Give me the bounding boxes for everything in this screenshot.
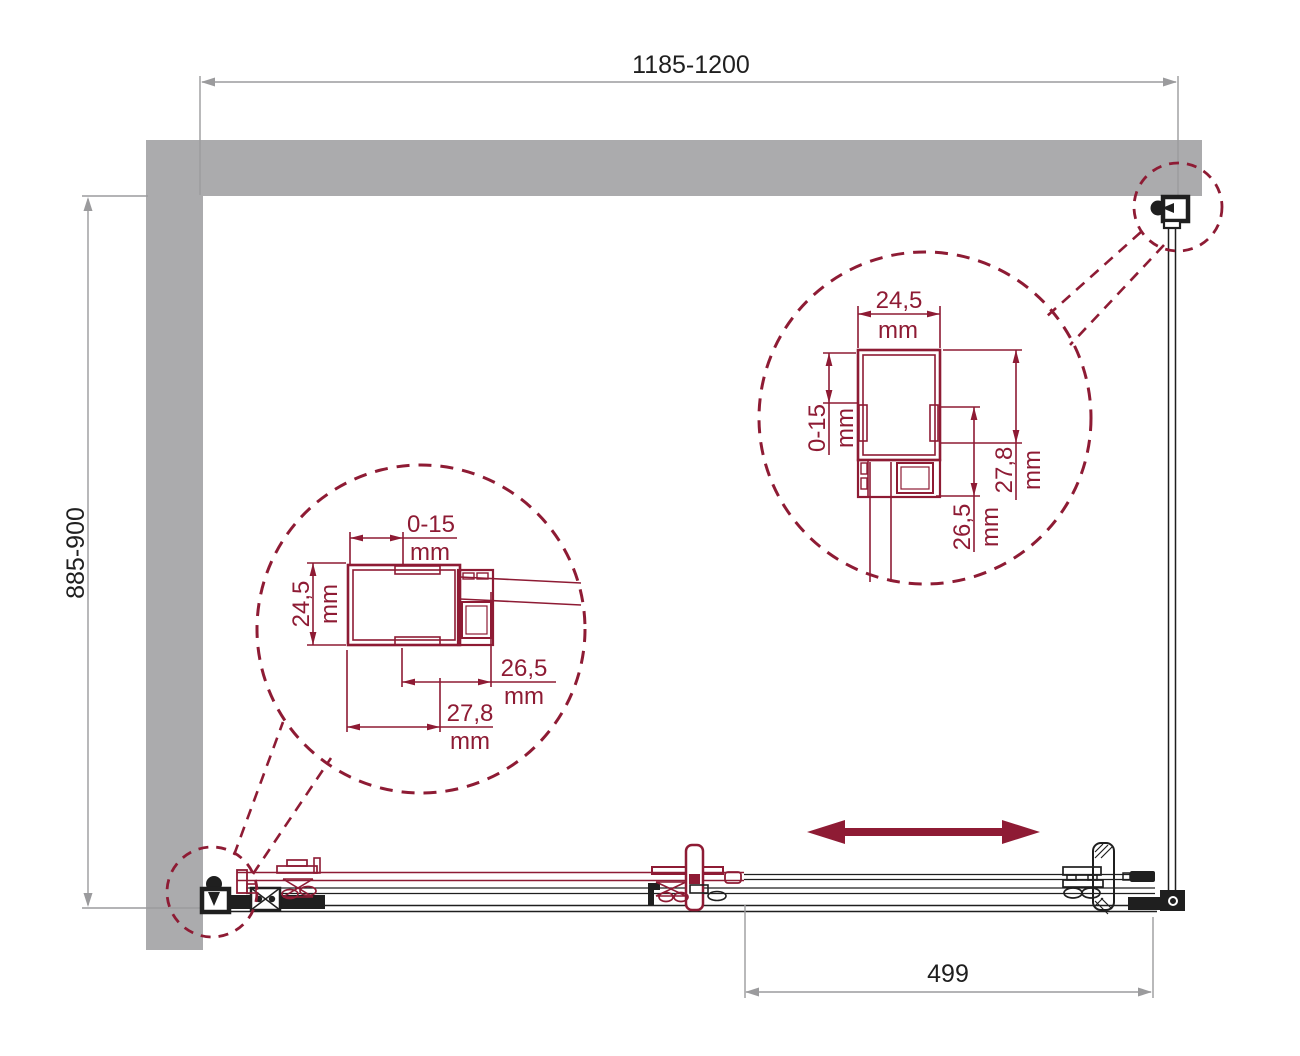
bottom-width-label: 499: [927, 960, 969, 988]
detail-right-dim-right: 27,8 mm: [941, 350, 1046, 500]
value-label: 27,8: [991, 447, 1018, 494]
wall-profile-section: [858, 350, 940, 582]
value-label: 0-15: [407, 511, 455, 538]
unit-label: mm: [316, 584, 343, 624]
callout-leader: [1046, 232, 1141, 317]
profile-outer: [348, 565, 460, 645]
corner-roller-assembly: [1063, 843, 1185, 914]
value-label: 0-15: [804, 404, 831, 452]
arrowhead: [478, 679, 491, 686]
detail-left-dim-side: 24,5 mm: [288, 563, 346, 645]
top-width-label: 1185-1200: [632, 51, 750, 79]
unit-label: mm: [504, 683, 544, 710]
technical-drawing-page: 1185-1200 885-900: [0, 0, 1300, 1056]
arrowhead: [310, 632, 317, 645]
left-height-label: 885-900: [62, 507, 90, 599]
bracket-bar: [1063, 880, 1103, 887]
arrowhead: [390, 535, 403, 542]
back-wall: [146, 140, 1202, 196]
bracket-bar: [1063, 867, 1101, 875]
door-end-cap-right: [725, 872, 741, 883]
detail-right-dim-top: 24,5 mm: [858, 287, 940, 348]
arrowhead: [826, 353, 833, 366]
unit-label: mm: [1019, 450, 1046, 490]
roller-cap: [287, 860, 307, 866]
arrowhead: [971, 407, 978, 420]
arrowhead: [350, 535, 363, 542]
callout-leader: [1070, 245, 1164, 345]
unit-label: mm: [450, 728, 490, 755]
arrowhead-right: [1138, 988, 1152, 997]
value-label: 27,8: [447, 700, 494, 727]
detail-left-dim-inner: 26,5 mm: [402, 592, 556, 710]
detail-right-dim-side: 0-15 mm: [804, 353, 859, 455]
clamp-pad: [861, 478, 867, 489]
base-box-inner: [466, 606, 487, 634]
arrowhead: [1013, 350, 1020, 363]
arrowhead-down: [84, 893, 93, 907]
detail-view-right: 24,5 mm 0-15 mm 26,5 mm 27,8: [759, 252, 1091, 584]
track-end-cap: [1130, 871, 1155, 882]
extension-line: [347, 650, 440, 732]
callout-leader: [234, 722, 283, 855]
profile-inner: [863, 355, 935, 455]
clamp-pad: [861, 463, 867, 474]
arrowhead: [427, 724, 440, 731]
extension-line: [941, 350, 1022, 443]
detail-left-dim-top: 0-15 mm: [350, 511, 457, 566]
arrowhead-left: [201, 78, 215, 87]
glass-edge: [460, 577, 581, 583]
bottom-profile-section: [348, 565, 581, 645]
corner-block: [1128, 897, 1162, 910]
door-roller-left: [277, 858, 320, 899]
technical-drawing-canvas: 1185-1200 885-900: [0, 0, 1300, 1056]
arrowhead: [347, 724, 360, 731]
glass-clip: [930, 405, 938, 441]
unit-label: mm: [977, 507, 1004, 547]
unit-label: mm: [878, 317, 918, 344]
arrowhead-right: [1163, 78, 1177, 87]
slide-direction-arrow-icon: [807, 820, 1040, 844]
unit-label: mm: [410, 539, 450, 566]
corner-fitting: [1160, 890, 1185, 911]
value-label: 24,5: [288, 581, 315, 628]
arrowhead-up: [84, 197, 93, 211]
profile-inner: [353, 570, 455, 640]
bracket-tab: [1164, 221, 1180, 228]
unit-label: mm: [832, 408, 859, 448]
arrowhead: [971, 483, 978, 496]
profile-outer: [858, 350, 940, 460]
detail-left-dim-bottom: 27,8 mm: [347, 650, 493, 755]
door-end-cap-left: [237, 870, 247, 893]
bolt: [269, 896, 275, 902]
detail-view-left: 0-15 mm 24,5 mm 26,5 mm 27,8: [257, 465, 585, 793]
bottom-width-dimension: 499: [745, 905, 1153, 998]
arrowhead: [402, 679, 415, 686]
value-label: 26,5: [949, 504, 976, 551]
side-wall: [146, 140, 203, 950]
arrowhead: [927, 311, 940, 318]
walls: [146, 140, 1202, 950]
arrowhead-left: [745, 988, 759, 997]
door-roller-center: [648, 845, 741, 910]
base-box-inner: [901, 467, 929, 489]
top-right-wall-profile-fitting: [1151, 197, 1189, 228]
arrowhead: [310, 563, 317, 576]
arrowhead: [1013, 430, 1020, 443]
fixed-side-glass-panel: [1169, 227, 1176, 893]
arrowhead: [826, 390, 833, 403]
arrowhead: [858, 311, 871, 318]
value-label: 26,5: [501, 655, 548, 682]
value-label: 24,5: [876, 287, 923, 314]
handle-hub: [689, 874, 700, 884]
